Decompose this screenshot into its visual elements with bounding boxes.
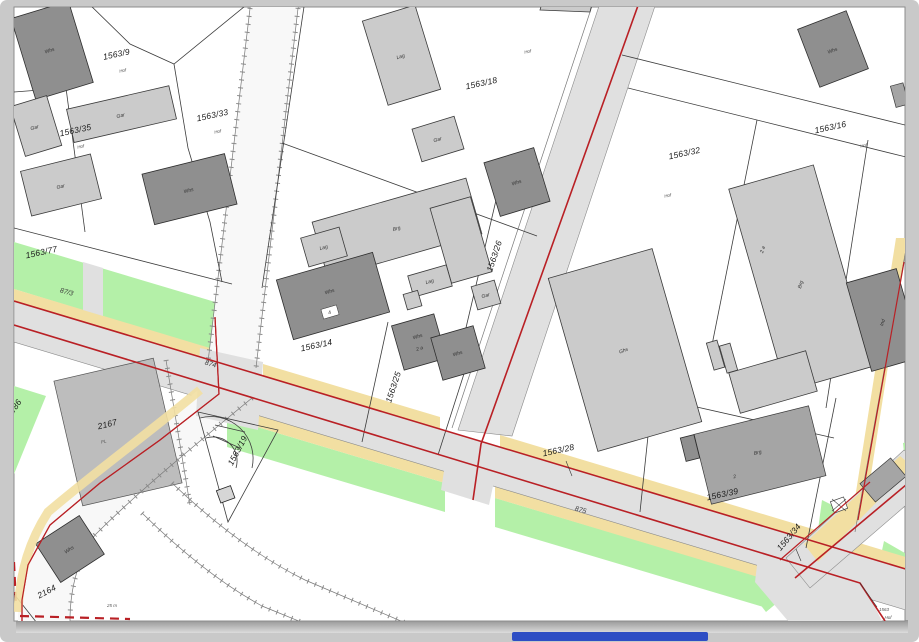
cadastral-map[interactable]: 1563/9 Hof 1563/33 Hof 1563/35 Hof 1563/…	[0, 0, 919, 642]
screenshot-stage: 1563/9 Hof 1563/33 Hof 1563/35 Hof 1563/…	[0, 0, 919, 642]
parcel-label: 1563	[879, 607, 890, 612]
frame-shadow	[16, 620, 908, 633]
scale-label: 25 m	[106, 603, 117, 608]
taskbar-fragment	[512, 632, 708, 641]
parcel-sublabel: Hof	[884, 615, 892, 620]
